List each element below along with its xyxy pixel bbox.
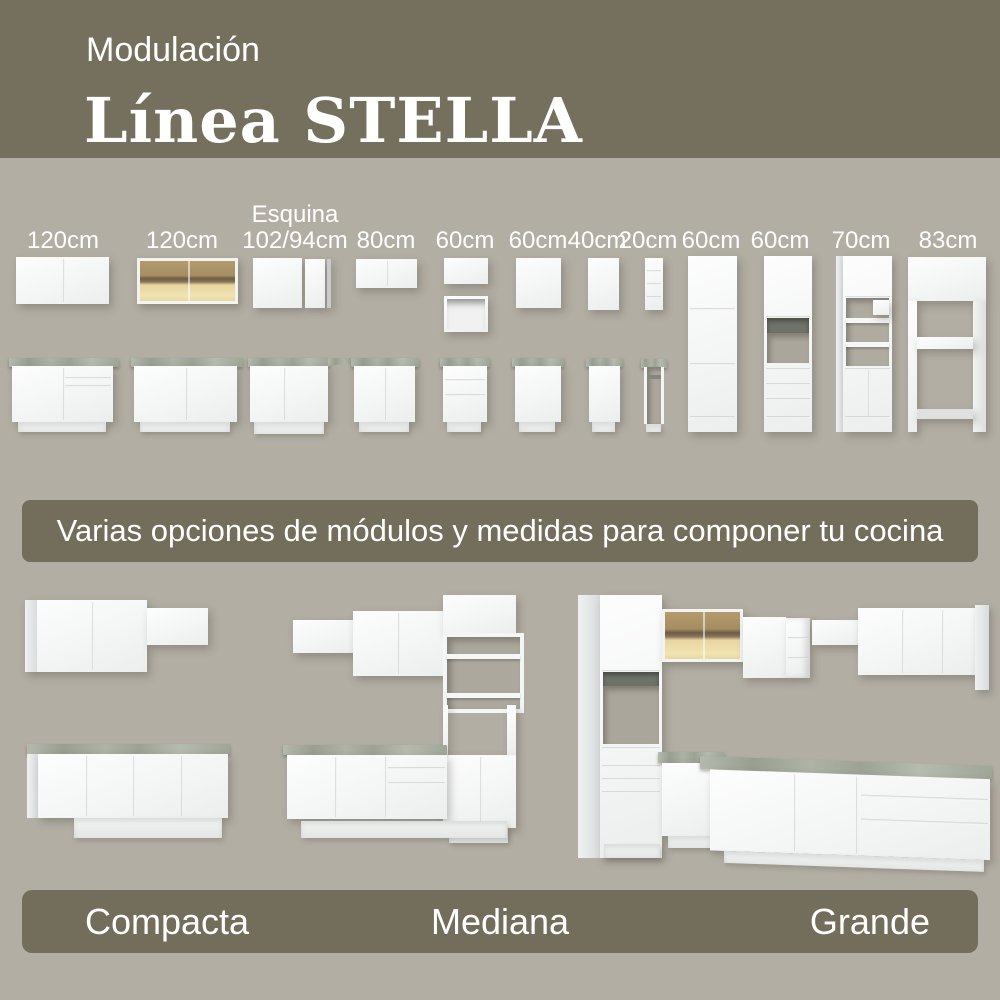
module-label-2: 120cm <box>146 229 218 253</box>
plinth <box>301 821 507 838</box>
cabinet-body <box>134 366 237 422</box>
cabinet-body <box>443 366 487 422</box>
open-space <box>767 333 809 363</box>
drawer-divider <box>388 782 445 784</box>
door-divider <box>284 368 286 420</box>
grande-open-cubbies <box>786 618 810 678</box>
cabinet-body <box>589 366 620 422</box>
kitchen-size-label-grande: Grande <box>810 890 930 953</box>
grande-base-right-run <box>700 756 992 872</box>
door-divider <box>385 757 387 817</box>
countertop <box>27 744 230 754</box>
corner-wall-cabinet-panel <box>305 259 325 308</box>
glass-divider <box>703 612 705 659</box>
plinth <box>74 818 222 838</box>
door-divider <box>398 613 400 674</box>
door-divider <box>181 756 183 816</box>
plinth <box>18 422 106 432</box>
plinth-divider <box>690 416 735 418</box>
grande-glass-cabinet <box>662 609 743 662</box>
frame-top-box <box>908 257 986 301</box>
open-space <box>603 686 659 744</box>
compacta-base-run <box>27 744 230 840</box>
side-panel <box>578 595 600 858</box>
door-divider <box>133 756 135 816</box>
header-band: Modulación Línea STELLA <box>0 0 1000 158</box>
poster: Modulación Línea STELLA 120cm 120cm Esqu… <box>0 0 1000 1000</box>
module-label-7: 40cm <box>568 229 627 253</box>
grande-tower <box>578 595 662 858</box>
door-divider <box>602 791 660 793</box>
mediana-base-run <box>283 745 447 840</box>
fridge-frame-83 <box>908 257 986 432</box>
corner-wall-cabinet-door <box>253 258 302 308</box>
shelf-tower-70 <box>836 256 892 432</box>
door-divider <box>902 610 904 673</box>
drawer-divider <box>766 368 810 370</box>
wall-cabinet-60-tall <box>516 258 561 308</box>
door-divider <box>335 757 337 817</box>
frame-bottom-shelf <box>917 409 973 419</box>
plinth <box>604 844 660 858</box>
frame-right-rail <box>973 301 986 432</box>
glass-divider <box>188 261 190 301</box>
kitchen-size-label-compacta: Compacta <box>85 890 249 953</box>
shelf <box>447 654 520 659</box>
page-title: Línea STELLA <box>84 90 583 152</box>
cabinet-body <box>12 366 113 422</box>
grande-wall-cabinet <box>743 617 786 678</box>
open-wall-niche-60 <box>444 296 488 332</box>
door-divider <box>794 774 796 851</box>
tower-top-cabinet <box>443 595 516 633</box>
open-frame <box>644 367 664 424</box>
plinth <box>592 422 615 432</box>
shelf-divider <box>788 637 808 639</box>
plinth <box>646 424 661 432</box>
banner: Varias opciones de módulos y medidas par… <box>22 500 978 562</box>
shelf <box>447 693 520 698</box>
plinth <box>254 422 324 434</box>
module-label-12: 83cm <box>919 229 978 253</box>
cabinet-body <box>515 366 561 422</box>
module-label-5: 60cm <box>436 229 495 253</box>
plinth-divider <box>845 416 890 418</box>
cabinet-body <box>250 366 328 422</box>
pantry-tower-60 <box>688 256 737 432</box>
grande-right-wall-cabinets <box>858 608 975 675</box>
module-label-3b: 102/94cm <box>242 229 347 253</box>
side-panel <box>27 754 38 818</box>
tower-front <box>843 256 892 432</box>
drawer-divider <box>65 385 111 387</box>
door-divider <box>92 602 94 670</box>
module-label-4: 80cm <box>357 229 416 253</box>
base-cabinet-60-drawers <box>443 358 487 432</box>
door-divider <box>385 368 387 420</box>
oven-niche <box>603 672 659 686</box>
plinth <box>447 422 481 432</box>
door-divider <box>480 757 482 826</box>
shelf <box>846 318 889 323</box>
door-divider <box>690 363 735 365</box>
shelf <box>846 342 889 347</box>
wall-cabinet-80 <box>356 259 417 288</box>
tower-front <box>600 595 662 858</box>
door-divider <box>690 308 735 310</box>
oven-tower-60 <box>764 256 812 432</box>
base-cabinet-120-doors <box>134 358 239 432</box>
mediana-wall-cabinet <box>353 611 443 676</box>
drawer-divider <box>766 398 810 400</box>
plinth <box>140 422 230 432</box>
wall-cabinet-40 <box>588 258 619 310</box>
base-cabinet-40 <box>589 358 620 432</box>
base-cabinet-80 <box>354 358 416 432</box>
drawer-divider <box>445 379 485 381</box>
frame-left-rail <box>908 301 917 432</box>
corner-base-cabinet <box>250 358 328 434</box>
kitchen-size-label-mediana: Mediana <box>431 890 569 953</box>
bottom-band: Compacta Mediana Grande <box>22 890 978 953</box>
shelf-divider <box>647 283 661 285</box>
door-divider <box>63 259 65 302</box>
base-cabinet-60-door <box>515 358 561 432</box>
banner-text: Varias opciones de módulos y medidas par… <box>57 513 944 549</box>
countertop <box>283 745 447 755</box>
compacta-wall-cabinet-short <box>147 608 208 645</box>
door-divider <box>868 370 870 416</box>
glass-wall-cabinet-120 <box>137 258 238 304</box>
grande-bridge-cabinet <box>812 620 858 645</box>
drawer-divider <box>602 778 660 780</box>
oven-niche <box>767 318 809 333</box>
module-label-3a: Esquina <box>252 203 339 227</box>
module-label-10: 60cm <box>751 229 810 253</box>
mediana-tower <box>443 595 516 845</box>
module-label-1: 120cm <box>27 229 99 253</box>
door-divider <box>942 610 944 673</box>
shelf-divider <box>647 270 661 272</box>
rail <box>647 375 661 379</box>
door-divider <box>856 776 858 853</box>
side-panel <box>836 256 843 432</box>
shelf-divider <box>647 296 661 298</box>
drawer-divider <box>861 819 988 825</box>
drawer-divider <box>65 377 111 379</box>
drawer-divider <box>766 383 810 385</box>
door-divider <box>186 368 188 420</box>
cabinet-body <box>38 754 228 818</box>
door-divider <box>63 368 65 420</box>
tower-right-rail <box>507 705 516 755</box>
grande-end-panel <box>975 605 989 690</box>
tower-shelf-box <box>443 633 524 713</box>
wall-cabinet-60 <box>444 258 488 284</box>
module-label-8: 20cm <box>619 229 678 253</box>
compacta-wall-cabinet <box>25 600 147 672</box>
drawer-divider <box>602 747 660 749</box>
frame-mid-shelf <box>917 337 973 349</box>
module-label-11: 70cm <box>832 229 891 253</box>
tower-base-doors <box>443 755 516 828</box>
small-box <box>873 300 889 315</box>
drawer-divider <box>861 795 988 801</box>
cabinet-body <box>710 769 990 860</box>
base-cabinet-120-drawers <box>12 358 115 432</box>
door-divider <box>387 261 389 286</box>
side-panel <box>25 600 37 672</box>
plinth-divider <box>766 416 810 418</box>
drawer-divider <box>388 767 445 769</box>
shelf-divider <box>788 657 808 659</box>
module-label-6: 60cm <box>509 229 568 253</box>
drawer-divider <box>602 765 660 767</box>
cabinet-body <box>354 366 415 422</box>
door-divider <box>86 756 88 816</box>
wall-rack-20 <box>645 258 663 310</box>
plinth <box>519 422 555 432</box>
corner-wall-cabinet-strip <box>327 259 331 308</box>
cabinet-body <box>287 755 447 819</box>
mediana-wall-cabinet-short <box>293 620 353 653</box>
module-label-9: 60cm <box>682 229 741 253</box>
wall-cabinet-120 <box>16 257 109 304</box>
base-frame-20 <box>644 359 664 432</box>
drawer-divider <box>445 394 485 396</box>
header-kicker: Modulación <box>86 32 260 69</box>
plinth <box>359 422 409 432</box>
niche-interior <box>447 299 485 329</box>
